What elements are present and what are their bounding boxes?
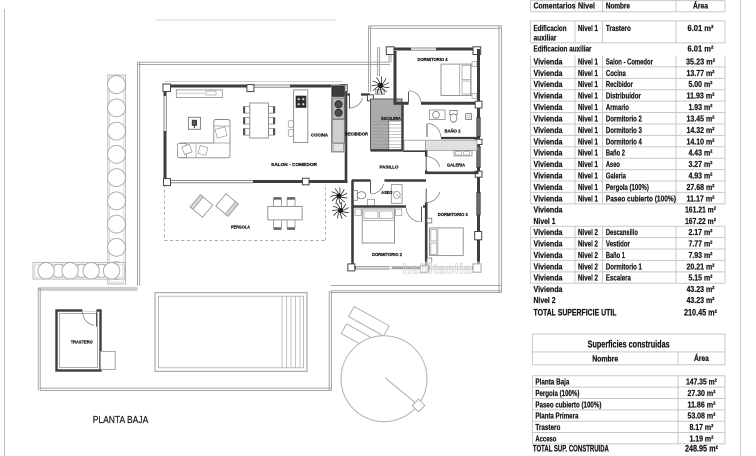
svg-text:Pergola (100%): Pergola (100%) xyxy=(535,389,579,398)
svg-text:35.23 m²: 35.23 m² xyxy=(686,57,715,66)
svg-text:Vivienda: Vivienda xyxy=(534,183,563,192)
svg-text:43.23 m²: 43.23 m² xyxy=(687,285,715,294)
svg-text:habitaclia: habitaclia xyxy=(402,261,472,277)
svg-text:SALON - COMEDOR: SALON - COMEDOR xyxy=(271,162,318,167)
svg-text:Nivel 2: Nivel 2 xyxy=(578,262,598,271)
svg-text:Nivel 2: Nivel 2 xyxy=(534,296,556,305)
svg-text:Vivienda: Vivienda xyxy=(534,160,563,169)
svg-text:13.45 m²: 13.45 m² xyxy=(687,114,715,123)
svg-text:4.93 m²: 4.93 m² xyxy=(689,172,713,181)
svg-text:TOTAL SUP. CONSTRUIDA: TOTAL SUP. CONSTRUIDA xyxy=(533,443,609,453)
svg-text:Distribuidor: Distribuidor xyxy=(606,92,642,101)
svg-text:167.22 m²: 167.22 m² xyxy=(685,217,716,226)
svg-text:BAÑO 2: BAÑO 2 xyxy=(445,128,461,134)
svg-text:Nivel 1: Nivel 1 xyxy=(578,126,598,135)
svg-text:Nivel: Nivel xyxy=(578,2,595,11)
svg-text:TOTAL SUPERFICIE UTIL: TOTAL SUPERFICIE UTIL xyxy=(534,307,617,317)
svg-text:Nivel 1: Nivel 1 xyxy=(578,172,598,181)
svg-text:248.95 m²: 248.95 m² xyxy=(685,443,718,453)
svg-text:1.19 m²: 1.19 m² xyxy=(689,434,713,443)
svg-text:Vivienda: Vivienda xyxy=(534,149,563,158)
svg-text:Dormitorio 2: Dormitorio 2 xyxy=(606,114,642,123)
svg-text:6.01 m²: 6.01 m² xyxy=(688,45,714,54)
svg-text:Acceso: Acceso xyxy=(535,434,556,443)
svg-text:Vivienda: Vivienda xyxy=(534,172,563,181)
svg-text:Paseo cubierto (100%): Paseo cubierto (100%) xyxy=(535,400,601,409)
svg-text:2.17 m²: 2.17 m² xyxy=(689,228,713,237)
svg-text:DORMITORIO 4: DORMITORIO 4 xyxy=(418,57,448,62)
svg-text:Edificacion: Edificacion xyxy=(534,24,567,33)
svg-text:PERGOLA: PERGOLA xyxy=(231,224,251,229)
svg-text:Vivienda: Vivienda xyxy=(534,240,563,249)
svg-text:TRASTERO: TRASTERO xyxy=(71,339,93,344)
svg-text:Vivienda: Vivienda xyxy=(534,92,563,101)
svg-text:Nivel 1: Nivel 1 xyxy=(578,80,598,89)
svg-text:DORMITORIO 3: DORMITORIO 3 xyxy=(438,212,468,217)
svg-text:Nivel 2: Nivel 2 xyxy=(578,251,598,260)
svg-text:Nivel 1: Nivel 1 xyxy=(578,92,598,101)
svg-text:5.00 m²: 5.00 m² xyxy=(689,80,713,89)
svg-text:Dormitorio 1: Dormitorio 1 xyxy=(606,262,642,271)
svg-text:PASILLO: PASILLO xyxy=(380,164,399,169)
svg-text:Vivienda: Vivienda xyxy=(534,57,563,66)
svg-text:Nivel 1: Nivel 1 xyxy=(578,69,598,78)
svg-text:Vivienda: Vivienda xyxy=(534,103,563,112)
svg-text:Nivel 1: Nivel 1 xyxy=(578,24,598,33)
svg-text:GALERIA: GALERIA xyxy=(447,162,466,167)
svg-text:5.15 m²: 5.15 m² xyxy=(689,274,713,283)
svg-text:Vivienda: Vivienda xyxy=(534,262,563,271)
svg-text:Nivel 1: Nivel 1 xyxy=(578,194,598,203)
svg-text:Planta Baja: Planta Baja xyxy=(535,378,569,387)
svg-text:Vivienda: Vivienda xyxy=(534,206,563,215)
svg-text:COCINA: COCINA xyxy=(311,132,329,137)
svg-text:Escalera: Escalera xyxy=(606,274,631,283)
svg-text:Área: Área xyxy=(694,353,709,363)
svg-text:Nivel 1: Nivel 1 xyxy=(534,217,556,226)
svg-text:1.93 m²: 1.93 m² xyxy=(689,103,713,112)
svg-text:Baño 1: Baño 1 xyxy=(606,251,625,260)
svg-text:53.08 m²: 53.08 m² xyxy=(687,412,715,421)
svg-text:ASEO: ASEO xyxy=(381,190,392,195)
svg-text:Vivienda: Vivienda xyxy=(534,114,563,123)
svg-text:210.45 m²: 210.45 m² xyxy=(684,307,717,317)
svg-text:Nivel 2: Nivel 2 xyxy=(578,240,598,249)
svg-text:Vestidor: Vestidor xyxy=(606,240,631,249)
svg-text:Trastero: Trastero xyxy=(606,24,631,33)
svg-text:Comentarios: Comentarios xyxy=(534,2,576,11)
svg-text:Nivel 1: Nivel 1 xyxy=(578,114,598,123)
svg-text:4.43 m²: 4.43 m² xyxy=(689,149,713,158)
svg-text:Vivienda: Vivienda xyxy=(534,137,563,146)
svg-text:Baño 2: Baño 2 xyxy=(606,149,625,158)
svg-text:DORMITORIO 2: DORMITORIO 2 xyxy=(372,252,402,257)
svg-text:Nombre: Nombre xyxy=(592,355,618,364)
svg-text:auxiliar: auxiliar xyxy=(534,34,558,43)
svg-text:7.77 m²: 7.77 m² xyxy=(689,240,713,249)
svg-text:PLANTA BAJA: PLANTA BAJA xyxy=(93,415,149,426)
svg-text:14.10 m²: 14.10 m² xyxy=(687,137,715,146)
svg-text:Vivienda: Vivienda xyxy=(534,285,563,294)
svg-text:Nombre: Nombre xyxy=(606,2,630,11)
svg-text:147.35 m²: 147.35 m² xyxy=(686,378,717,387)
svg-text:RECIBIDOR: RECIBIDOR xyxy=(345,131,369,136)
svg-text:Vivienda: Vivienda xyxy=(534,251,563,260)
svg-text:Nivel 1: Nivel 1 xyxy=(578,103,598,112)
svg-text:ESCALERA: ESCALERA xyxy=(381,116,401,121)
svg-text:8.17 m²: 8.17 m² xyxy=(689,423,713,432)
svg-text:Dormitorio 3: Dormitorio 3 xyxy=(606,126,642,135)
svg-text:Nivel 1: Nivel 1 xyxy=(578,57,598,66)
svg-text:Nivel 1: Nivel 1 xyxy=(578,149,598,158)
svg-text:27.68 m²: 27.68 m² xyxy=(687,183,715,192)
svg-text:Vivienda: Vivienda xyxy=(534,194,563,203)
svg-text:Vivienda: Vivienda xyxy=(534,69,563,78)
svg-text:Cocina: Cocina xyxy=(606,69,626,78)
svg-text:43.23 m²: 43.23 m² xyxy=(687,296,715,305)
svg-text:3.27 m²: 3.27 m² xyxy=(689,160,713,169)
svg-text:11.93 m²: 11.93 m² xyxy=(687,92,715,101)
svg-text:20.21 m²: 20.21 m² xyxy=(687,262,715,271)
svg-text:11.86 m²: 11.86 m² xyxy=(687,400,715,409)
svg-text:Superficies construidas: Superficies construidas xyxy=(588,340,670,351)
svg-text:Armario: Armario xyxy=(606,103,629,112)
svg-text:Recibidor: Recibidor xyxy=(606,80,634,89)
svg-text:Planta Primera: Planta Primera xyxy=(535,412,578,421)
svg-text:27.30 m²: 27.30 m² xyxy=(687,389,715,398)
svg-text:Nivel 1: Nivel 1 xyxy=(578,160,598,169)
svg-text:13.77 m²: 13.77 m² xyxy=(687,69,715,78)
svg-text:Nivel 2: Nivel 2 xyxy=(578,274,598,283)
svg-text:Nivel 1: Nivel 1 xyxy=(578,137,598,146)
svg-text:Nivel 1: Nivel 1 xyxy=(578,183,598,192)
svg-text:Galeria: Galeria xyxy=(606,172,626,181)
svg-text:Edificacion auxiliar: Edificacion auxiliar xyxy=(534,45,593,54)
svg-text:11.17 m²: 11.17 m² xyxy=(687,194,715,203)
svg-text:Pergola (100%): Pergola (100%) xyxy=(606,183,649,192)
svg-text:14.32 m²: 14.32 m² xyxy=(687,126,715,135)
svg-text:Nivel 2: Nivel 2 xyxy=(578,228,598,237)
svg-text:Vivienda: Vivienda xyxy=(534,126,563,135)
svg-text:Vivienda: Vivienda xyxy=(534,274,563,283)
svg-text:7.93 m²: 7.93 m² xyxy=(689,251,713,260)
svg-text:Paseo cubierto (100%): Paseo cubierto (100%) xyxy=(606,194,676,203)
svg-text:Vivienda: Vivienda xyxy=(534,80,563,89)
svg-text:Salon - Comedor: Salon - Comedor xyxy=(606,57,654,66)
svg-text:6.01 m²: 6.01 m² xyxy=(688,24,714,33)
svg-text:Vivienda: Vivienda xyxy=(534,228,563,237)
svg-text:Descansillo: Descansillo xyxy=(606,228,638,237)
svg-text:Área: Área xyxy=(693,1,708,11)
svg-text:Aseo: Aseo xyxy=(606,160,620,169)
svg-text:Trastero: Trastero xyxy=(535,423,560,432)
svg-text:Dormitorio 4: Dormitorio 4 xyxy=(606,137,642,146)
svg-text:161.21 m²: 161.21 m² xyxy=(685,206,716,215)
